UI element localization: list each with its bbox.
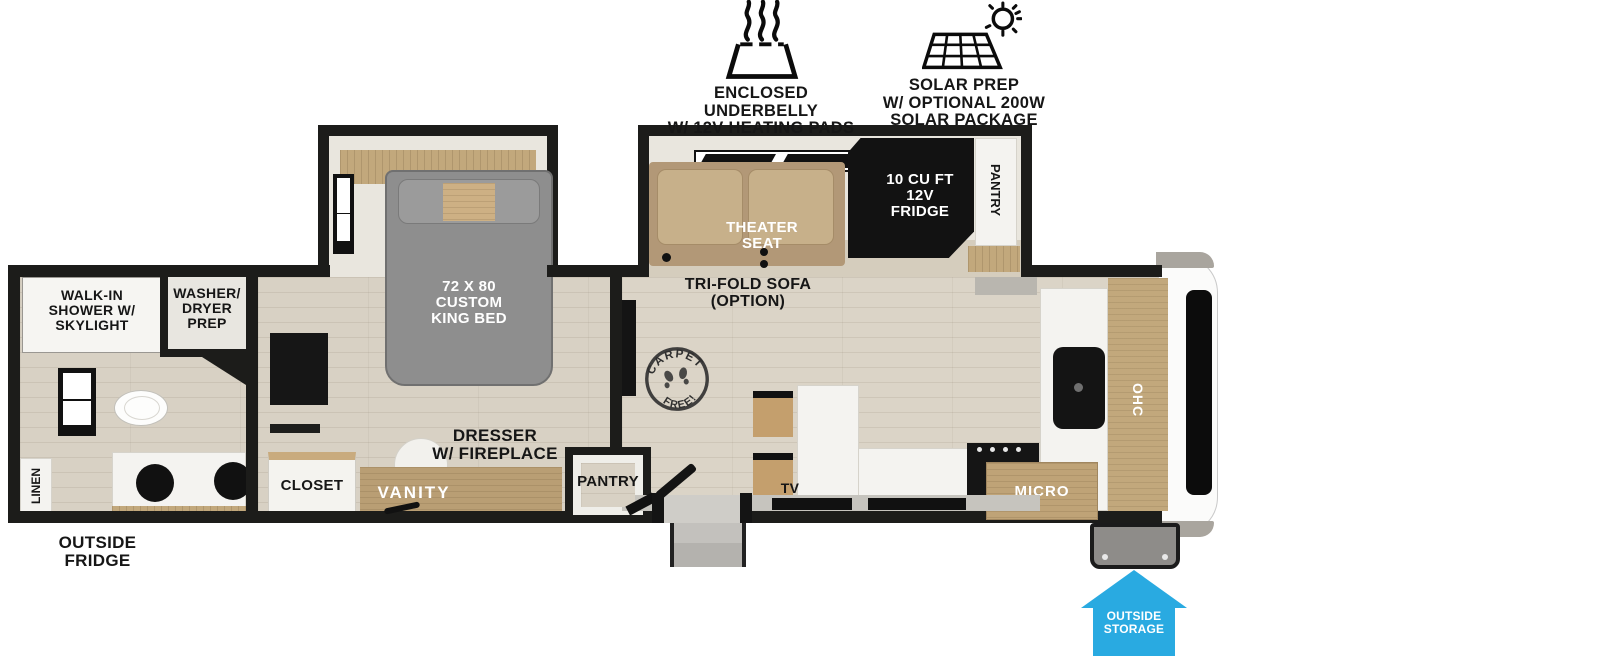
heating-pads-icon [710, 0, 814, 82]
entry-steps [670, 523, 746, 567]
vanity-label: VANITY [368, 484, 460, 502]
bathroom-window [58, 368, 96, 436]
linen-label: LINEN [14, 460, 58, 512]
kitchen-pantry-label: PANTRY [971, 164, 1021, 216]
tv-label: TV [768, 481, 812, 496]
ohc-label: OHC [1118, 374, 1158, 426]
top-wall [547, 265, 649, 277]
dresser-fireplace-label: DRESSER W/ FIREPLACE [415, 427, 575, 463]
front-cap-trim-top [1156, 252, 1214, 268]
fridge-label: 10 CU FT 12V FRIDGE [870, 172, 970, 220]
closet-label: CLOSET [270, 478, 354, 494]
trifold-sofa-label: TRI-FOLD SOFA (OPTION) [670, 276, 826, 310]
top-wall [1021, 265, 1162, 277]
solar-prep-icon [922, 0, 1022, 80]
front-window [1186, 290, 1212, 495]
bath-bedroom-wall [246, 277, 258, 511]
underbelly-label: ENCLOSED UNDERBELLY W/ 12V HEATING PADS [655, 85, 867, 138]
entry-door-floor [664, 495, 740, 523]
outside-storage-door [1090, 523, 1180, 569]
entry-door-jamb [740, 493, 752, 523]
washer-wall [160, 349, 246, 357]
carpet-free-stamp: CARPET FREE! [635, 337, 719, 421]
solar-label: SOLAR PREP W/ OPTIONAL 200W SOLAR PACKAG… [880, 77, 1048, 130]
recliner-foot [662, 253, 671, 262]
bedroom-window-left [333, 174, 354, 254]
footprints-glyph [662, 366, 690, 389]
dresser-shelf [270, 424, 320, 433]
recliner-foot [760, 260, 768, 268]
living-tv-wall-unit [622, 300, 636, 396]
tv [772, 498, 852, 510]
top-wall [8, 265, 330, 277]
range-hood-cabinet [975, 277, 1037, 295]
bottom-window [868, 498, 966, 510]
walk-in-shower-label: WALK-IN SHOWER W/ SKYLIGHT [26, 288, 158, 333]
outside-storage-label: OUTSIDE STORAGE [1092, 610, 1176, 636]
bed-blanket [443, 183, 495, 221]
toilet-seat [124, 396, 160, 420]
floorplan-canvas: ENCLOSED UNDERBELLY W/ 12V HEATING PADS … [0, 0, 1600, 660]
king-bed-label: 72 X 80 CUSTOM KING BED [409, 279, 529, 327]
outside-fridge-label: OUTSIDE FRIDGE [40, 534, 155, 570]
theater-seat-label: THEATER SEAT [697, 220, 827, 252]
bath-sink [136, 464, 174, 502]
washer-wall [160, 277, 168, 357]
fireplace-dresser [270, 333, 328, 405]
bedroom-living-wall [610, 277, 622, 449]
kitchen-sink-drain [1074, 383, 1083, 392]
bar-stool [753, 391, 793, 437]
bedroom-pantry-label: PANTRY [567, 474, 649, 490]
kitchen-pantry-base [968, 246, 1020, 272]
washer-dryer-label: WASHER/ DRYER PREP [168, 286, 246, 331]
